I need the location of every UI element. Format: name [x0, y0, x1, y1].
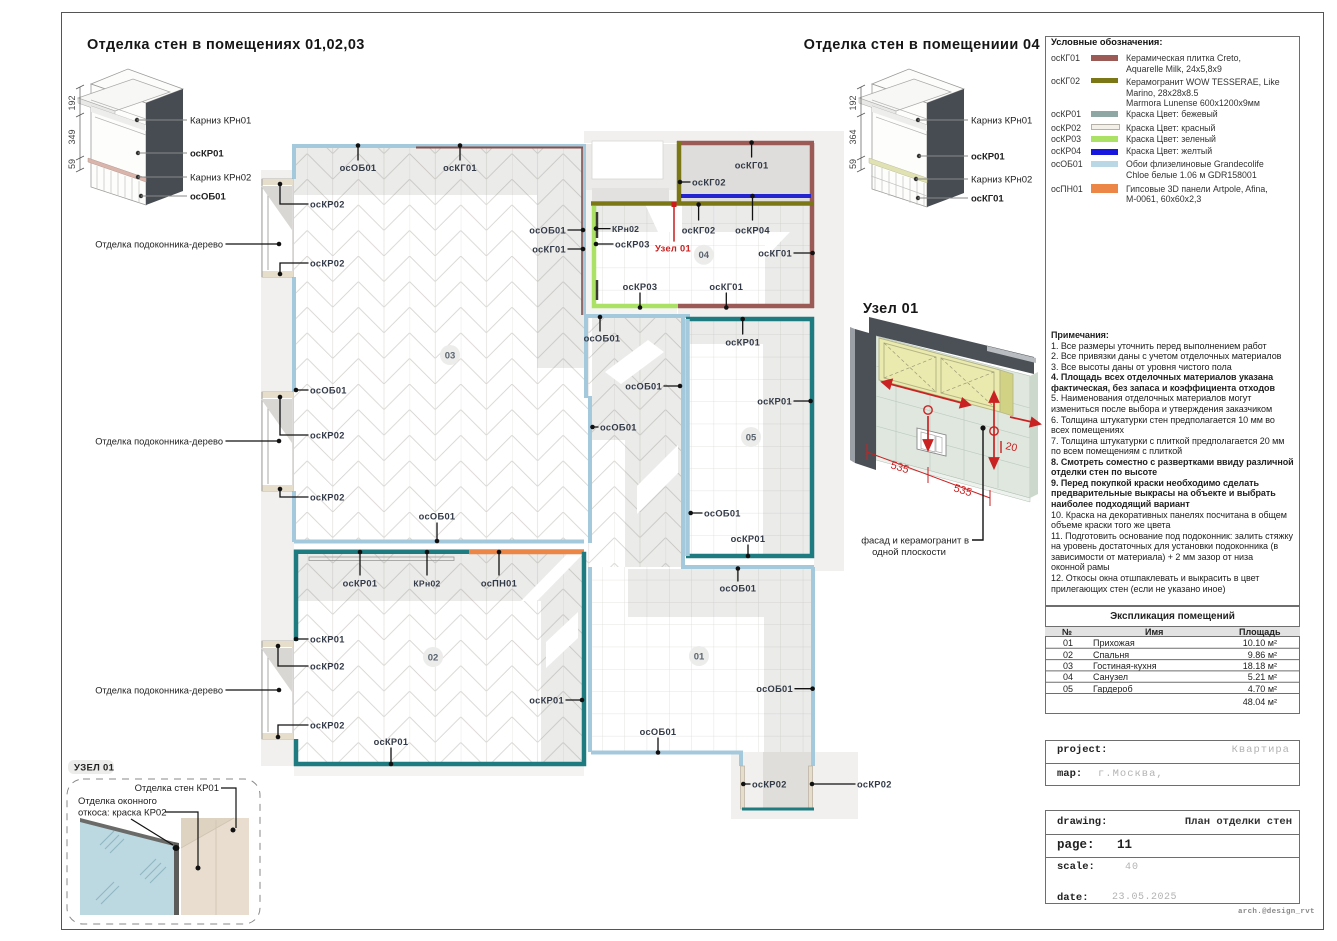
svg-text:осКР01: осКР01 — [971, 152, 1005, 163]
svg-text:осКР01: осКР01 — [725, 338, 760, 348]
svg-text:осКР02: осКР02 — [310, 493, 345, 503]
svg-text:одной плоскости: одной плоскости — [872, 547, 946, 558]
svg-text:59: 59 — [848, 159, 858, 169]
svg-text:02: 02 — [428, 653, 439, 664]
svg-text:осКГ01: осКГ01 — [735, 161, 769, 171]
svg-text:Отделка стен КР01: Отделка стен КР01 — [135, 783, 219, 794]
svg-text:349: 349 — [67, 129, 77, 144]
svg-text:откоса: краска КР02: откоса: краска КР02 — [78, 808, 166, 819]
svg-text:Карниз КРн01: Карниз КРн01 — [190, 116, 251, 127]
svg-text:осКГ01: осКГ01 — [709, 282, 743, 292]
svg-text:Отделка подоконника-дерево: Отделка подоконника-дерево — [95, 686, 223, 696]
svg-text:осОБ01: осОБ01 — [190, 192, 226, 203]
svg-text:Отделка оконного: Отделка оконного — [78, 796, 157, 807]
svg-text:осОБ01: осОБ01 — [340, 163, 377, 173]
svg-text:59: 59 — [67, 159, 77, 169]
svg-text:осКР01: осКР01 — [190, 149, 224, 160]
svg-text:192: 192 — [848, 95, 858, 110]
svg-text:осПН01: осПН01 — [481, 579, 517, 589]
svg-text:осКР03: осКР03 — [623, 282, 658, 292]
svg-text:Узел 01: Узел 01 — [655, 244, 691, 254]
svg-text:осОБ01: осОБ01 — [584, 334, 621, 344]
svg-text:фасад и керамогранит в: фасад и керамогранит в — [861, 536, 969, 547]
svg-text:осОБ01: осОБ01 — [419, 512, 456, 522]
svg-text:осКР02: осКР02 — [310, 200, 345, 210]
svg-text:осКГ02: осКГ02 — [692, 178, 726, 188]
svg-text:осОБ01: осОБ01 — [720, 584, 757, 594]
svg-text:осКР02: осКР02 — [310, 721, 345, 731]
svg-text:192: 192 — [67, 95, 77, 110]
svg-text:осКГ01: осКГ01 — [532, 245, 566, 255]
svg-text:осКР02: осКР02 — [310, 259, 345, 269]
svg-text:КРн02: КРн02 — [413, 579, 440, 589]
svg-text:Отделка подоконника-дерево: Отделка подоконника-дерево — [95, 437, 223, 447]
svg-text:осКР01: осКР01 — [310, 635, 345, 645]
svg-text:УЗЕЛ 01: УЗЕЛ 01 — [74, 763, 115, 774]
svg-text:осКГ01: осКГ01 — [971, 194, 1004, 205]
svg-text:осКГ01: осКГ01 — [443, 163, 477, 173]
svg-text:04: 04 — [699, 250, 710, 261]
svg-text:осКР04: осКР04 — [735, 226, 770, 236]
svg-text:осКР01: осКР01 — [731, 534, 766, 544]
svg-text:осОБ01: осОБ01 — [625, 382, 662, 392]
svg-text:364: 364 — [848, 129, 858, 144]
svg-text:осОБ01: осОБ01 — [640, 727, 677, 737]
svg-text:05: 05 — [746, 433, 757, 444]
svg-text:осКР02: осКР02 — [310, 431, 345, 441]
svg-text:03: 03 — [445, 351, 456, 362]
svg-text:КРн02: КРн02 — [612, 224, 639, 234]
svg-text:Карниз КРн02: Карниз КРн02 — [190, 173, 251, 184]
svg-text:Карниз КРн01: Карниз КРн01 — [971, 116, 1032, 127]
svg-text:осКГ01: осКГ01 — [758, 249, 792, 259]
svg-text:осКР01: осКР01 — [757, 397, 792, 407]
svg-text:осКГ02: осКГ02 — [682, 226, 716, 236]
svg-text:осОБ01: осОБ01 — [310, 386, 347, 396]
svg-text:01: 01 — [694, 652, 705, 663]
svg-text:осКР02: осКР02 — [752, 780, 787, 790]
svg-text:Отделка подоконника-дерево: Отделка подоконника-дерево — [95, 240, 223, 250]
svg-text:осОБ01: осОБ01 — [600, 423, 637, 433]
svg-text:осОБ01: осОБ01 — [529, 226, 566, 236]
svg-text:Карниз КРн02: Карниз КРн02 — [971, 175, 1032, 186]
svg-text:осОБ01: осОБ01 — [756, 684, 793, 694]
svg-text:осКР01: осКР01 — [343, 579, 378, 589]
svg-text:осКР03: осКР03 — [615, 240, 650, 250]
svg-text:осКР02: осКР02 — [857, 780, 892, 790]
svg-text:осОБ01: осОБ01 — [704, 509, 741, 519]
svg-text:осКР01: осКР01 — [529, 696, 564, 706]
svg-text:осКР01: осКР01 — [374, 737, 409, 747]
svg-text:осКР02: осКР02 — [310, 662, 345, 672]
